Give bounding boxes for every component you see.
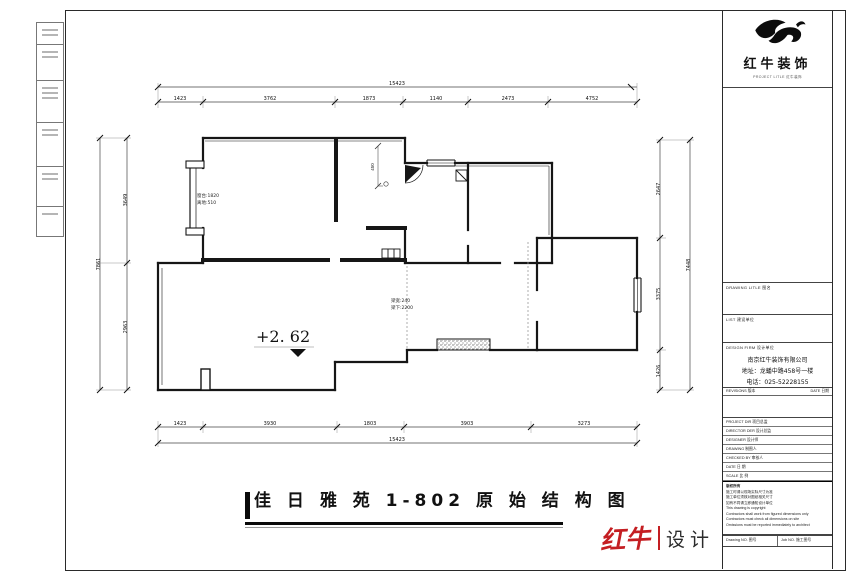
drawing-title: 佳 日 雅 苑 1-802 原 始 结 构 图 — [254, 486, 630, 511]
brand-signature-suffix: 设计 — [666, 525, 714, 552]
company-logo-name: 红牛装饰 — [723, 53, 832, 72]
brand-signature-name: 红牛 — [599, 519, 651, 558]
copyright-notes: 版权所有 施工时请以现场实际尺寸为准 施工单位须核对图纸相关尺寸 如有不同请立即… — [723, 481, 832, 535]
fixture-symbol — [382, 249, 400, 258]
dim-top-1: 1423 — [174, 96, 187, 102]
personnel-row: CHECKED BY 审核人 — [723, 454, 832, 463]
job-no-label: Job NO. 施工图号 — [778, 536, 832, 546]
interior-walls — [203, 140, 405, 260]
company-phone: 电话：025-52228155 — [723, 377, 832, 388]
company-address: 地址：龙蟠中路458号一楼 — [723, 366, 832, 377]
dim-right-2: 3375 — [656, 288, 662, 301]
dim-left-1: 3649 — [123, 194, 129, 207]
personnel-row: DIRECTOR DER 设计总监 — [723, 427, 832, 436]
dim-bottom-5: 3273 — [578, 421, 591, 427]
dim-bottom-3: 1803 — [364, 421, 377, 427]
brand-signature-divider — [658, 526, 660, 550]
door-symbol — [405, 165, 423, 183]
company-logo-area: 红牛装饰 PROJECT LITLE 红牛装饰 — [723, 10, 832, 88]
window-note-2: 离地:510 — [197, 199, 216, 206]
title-underline — [245, 522, 563, 525]
dim-bottom-1: 1423 — [174, 421, 187, 427]
personnel-row: DRAWING 制图人 — [723, 445, 832, 454]
drawing-number-section: Drawing NO. 图号 Job NO. 施工图号 — [723, 535, 832, 547]
dim-right-3: 1426 — [656, 365, 662, 378]
dim-left-2: 2963 — [123, 321, 129, 334]
drawing-title-label: DRAWING LITLE 图名 — [723, 283, 832, 291]
personnel-row: SCALE 比 例 — [723, 472, 832, 481]
design-firm-label: DESIGN FIRM 设计单位 — [723, 343, 832, 351]
dim-top-overall: 15423 — [389, 81, 405, 87]
revision-date-label: DATE 日期 — [811, 389, 830, 394]
client-label: LIST 建设单位 — [723, 315, 832, 323]
window-symbols — [186, 160, 641, 312]
dim-right-overall: 7448 — [686, 259, 692, 272]
dim-bottom-4: 3903 — [461, 421, 474, 427]
design-firm-section: DESIGN FIRM 设计单位 南京红牛装饰有限公司 地址：龙蟠中路458号一… — [723, 343, 832, 388]
outer-walls — [158, 138, 637, 390]
hatched-wall-strip — [437, 339, 490, 350]
client-section: LIST 建设单位 — [723, 315, 832, 343]
title-block: 红牛装饰 PROJECT LITLE 红牛装饰 DRAWING LITLE 图名… — [722, 10, 832, 569]
dim-top-4: 1140 — [430, 96, 443, 102]
bull-logo-icon — [749, 16, 807, 52]
brand-signature: 红牛 设计 — [600, 520, 714, 556]
dim-top-6: 4752 — [586, 96, 599, 102]
drawing-title-block: 佳 日 雅 苑 1-802 原 始 结 构 图 — [245, 486, 575, 528]
level-marker-text: +2. 62 — [256, 327, 310, 346]
revisions-section: REVISIONS 版本 DATE 日期 — [723, 388, 832, 418]
plan-annotations: 窗台:1820 离地:510 梁宽:240 梁下:2200 — [197, 192, 413, 311]
window-note-1: 窗台:1820 — [197, 192, 219, 199]
personnel-row: DATE 日 期 — [723, 463, 832, 472]
beam-note-1: 梁宽:240 — [391, 297, 410, 304]
dim-right-1: 2647 — [656, 183, 662, 196]
corridor-dim-text: 450 — [370, 163, 375, 171]
personnel-section: PROJECT DIR 项目总监 DIRECTOR DER 设计总监 DESIG… — [723, 418, 832, 481]
dim-bottom-2: 3930 — [264, 421, 277, 427]
drawing-no-label: Drawing NO. 图号 — [723, 536, 778, 546]
title-bracket-icon — [245, 492, 250, 519]
company-logo-caption: PROJECT LITLE 红牛装饰 — [723, 75, 832, 80]
level-marker: +2. 62 — [254, 327, 314, 357]
dim-left-overall: 7861 — [96, 258, 102, 271]
dim-top-5: 2473 — [502, 96, 515, 102]
beam-note-2: 梁下:2200 — [391, 304, 413, 311]
title-block-empty-section — [723, 88, 832, 283]
drawing-title-section: DRAWING LITLE 图名 — [723, 283, 832, 315]
personnel-row: PROJECT DIR 项目总监 — [723, 418, 832, 427]
wall-accents — [162, 141, 634, 385]
company-name: 南京红牛装饰有限公司 — [723, 355, 832, 366]
dim-bottom-overall: 15423 — [389, 437, 405, 443]
revisions-label: REVISIONS 版本 — [726, 389, 755, 394]
pillar-symbol — [201, 369, 210, 390]
title-underline-thin — [245, 527, 563, 528]
title-block-tail — [723, 547, 832, 569]
personnel-row: DESIGNER 设计师 — [723, 436, 832, 445]
corridor-dimension: 450 — [370, 143, 388, 189]
dim-top-2: 3762 — [264, 96, 277, 102]
level-marker-triangle — [290, 349, 306, 357]
dim-top-3: 1873 — [363, 96, 376, 102]
shaft-symbol — [456, 170, 467, 181]
